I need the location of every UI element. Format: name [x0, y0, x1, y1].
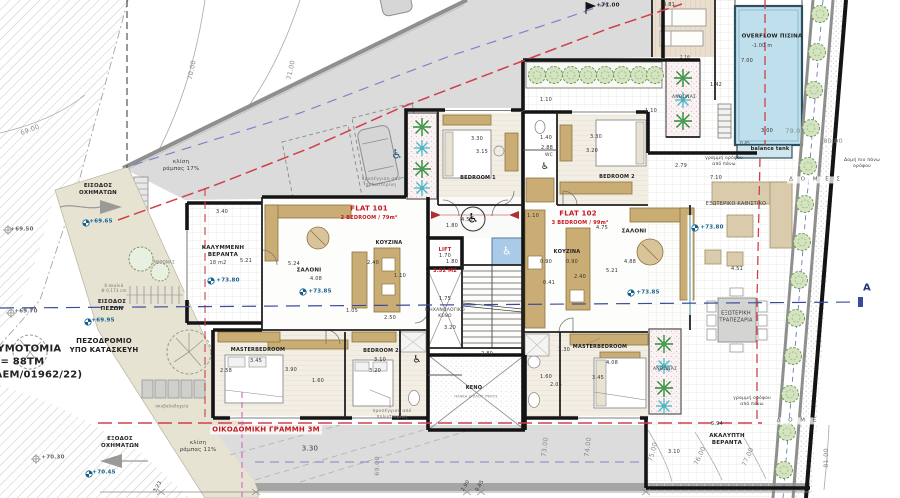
floor-plan: ΕΙΣΟΔΟΣ ΟΧΗΜΑΤΩΝ ΕΞΟΔΟΣ ΟΧΗΜΑΤΩΝ ΕΙΣΟΔΟΣ…	[0, 0, 900, 498]
accessible-parking-square	[492, 238, 523, 265]
pool-ladder-icon	[718, 104, 731, 138]
section-marker	[858, 297, 863, 307]
pool	[735, 6, 802, 145]
floor-plan-canvas	[0, 0, 900, 498]
bins	[142, 380, 205, 398]
